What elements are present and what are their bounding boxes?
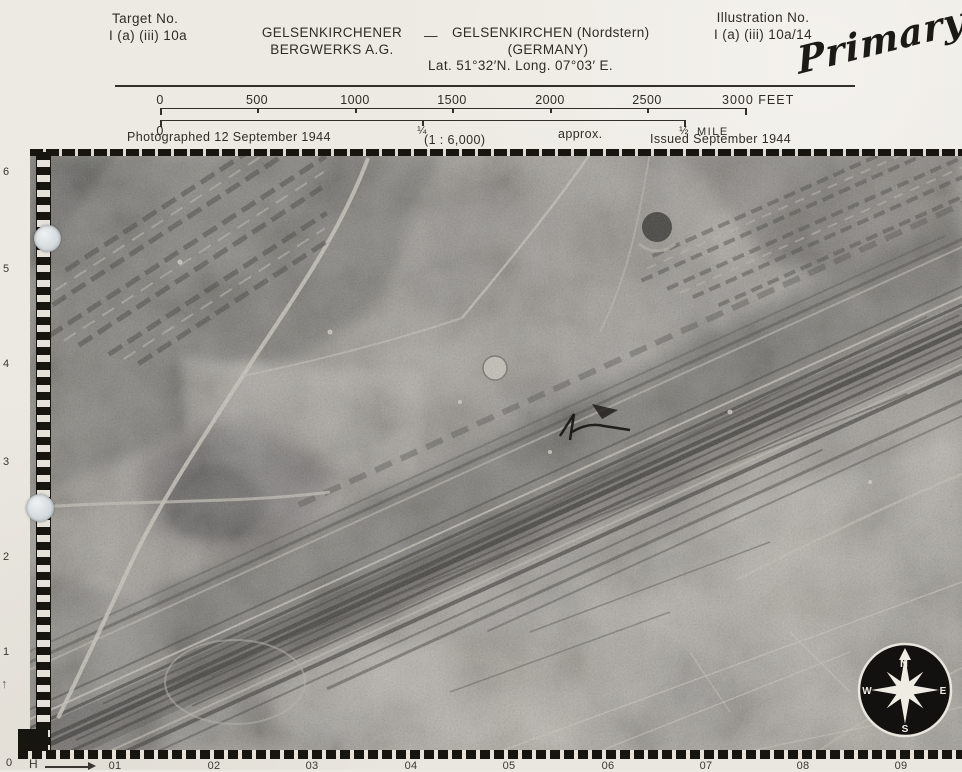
corner-block [18, 729, 48, 751]
grid-left-5: 5 [3, 263, 9, 275]
photographed-date: Photographed 12 September 1944 [127, 130, 331, 144]
compass-rose: N E S W [859, 644, 951, 736]
axis-arrow-head [88, 762, 96, 770]
scale-feet-3000: 3000 FEET [722, 93, 794, 107]
grid-bottom-03: 03 [306, 760, 319, 772]
compass-w-label: W [862, 686, 872, 697]
grid-left-3: 3 [3, 456, 9, 468]
grid-bottom-09: 09 [895, 760, 908, 772]
issued-date: Issued September 1944 [650, 132, 791, 146]
grid-bottom-06: 06 [602, 760, 615, 772]
axis-arrow-line [45, 766, 89, 768]
target-number-label: Target No. [112, 11, 178, 26]
punch-hole-top [34, 225, 61, 252]
margin-arrow-mark: ↑ [1, 676, 8, 691]
target-number-value: I (a) (iii) 10a [109, 28, 187, 43]
place-name-line2: (GERMANY) [452, 42, 644, 57]
coordinates: Lat. 51°32′N. Long. 07°03′ E. [428, 58, 613, 73]
scale-feet-2000: 2000 [535, 93, 564, 107]
scale-ratio: (1 : 6,000) [424, 133, 485, 147]
grid-origin: 0 [6, 757, 12, 769]
scale-feet-0: 0 [156, 93, 163, 107]
place-name-line1: GELSENKIRCHEN (Nordstern) [452, 25, 644, 40]
header-rule [115, 85, 855, 87]
compass-s-label: S [902, 724, 909, 735]
scale-feet-1000: 1000 [340, 93, 369, 107]
grid-bottom-01: 01 [109, 760, 122, 772]
grid-left-6: 6 [3, 166, 9, 178]
scale-feet-2500: 2500 [632, 93, 661, 107]
mount-card-page: Target No. I (a) (iii) 10a GELSENKIRCHEN… [0, 0, 962, 770]
grid-bottom-05: 05 [503, 760, 516, 772]
site-name-line1: GELSENKIRCHENER [246, 25, 418, 40]
approx-label: approx. [558, 127, 603, 141]
compass-e-label: E [940, 686, 947, 697]
punch-hole-bottom [26, 494, 54, 522]
aerial-photograph: N E S W [30, 152, 962, 755]
title-dash: — [424, 28, 438, 43]
compass-n-label: N [900, 658, 908, 670]
grid-bottom-07: 07 [700, 760, 713, 772]
grid-bottom-08: 08 [797, 760, 810, 772]
site-name-line2: BERGWERKS A.G. [246, 42, 418, 57]
scale-feet-500: 500 [246, 93, 268, 107]
grid-bottom-02: 02 [208, 760, 221, 772]
handwritten-primary-note: Primary [795, 0, 962, 83]
aerial-photo-image: N E S W [30, 152, 962, 755]
grid-left-1: 1 [3, 646, 9, 658]
grid-axis-letter: H [29, 757, 38, 771]
scale-feet-1500: 1500 [437, 93, 466, 107]
grid-bottom-04: 04 [405, 760, 418, 772]
illustration-number-label: Illustration No. [708, 10, 818, 25]
bottom-tick-strip [18, 750, 962, 759]
grid-left-2: 2 [3, 551, 9, 563]
grid-left-4: 4 [3, 358, 9, 370]
top-tick-strip [30, 149, 962, 156]
